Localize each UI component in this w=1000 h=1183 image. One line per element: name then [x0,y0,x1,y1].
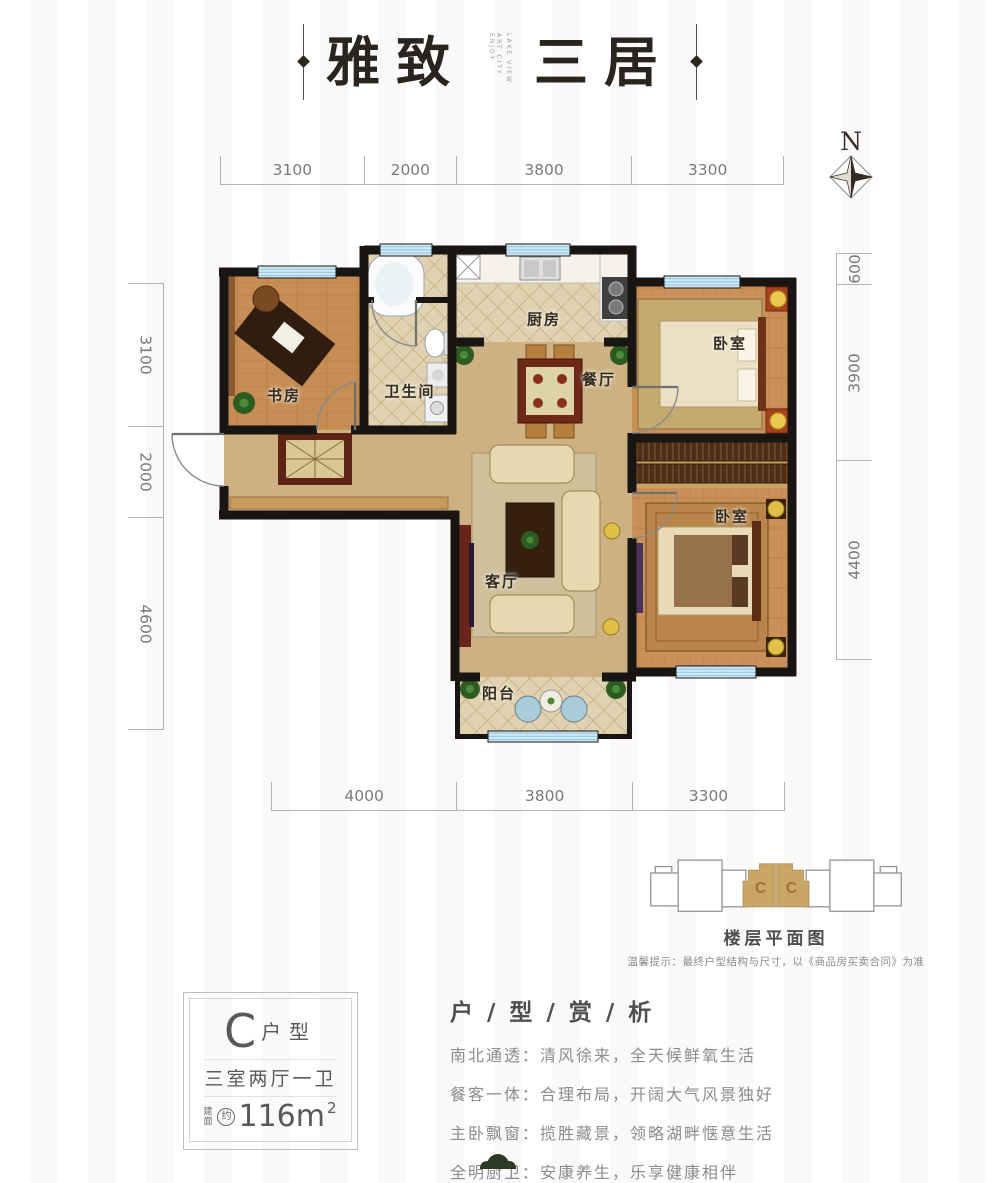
dim-top-1: 3100 [221,156,364,184]
floor-lamp [604,523,620,539]
title-ornament-left [303,24,304,100]
area-prefix: 建面 [203,1107,214,1128]
dim-bracket-top: 3100 2000 3800 3300 [220,156,784,185]
pillow [738,369,756,401]
compass: N [822,129,880,200]
pillow [738,329,756,361]
analysis-item: 主卧飘窗：揽胜藏景，领略湖畔惬意生活 [450,1120,890,1144]
window [258,266,336,278]
title-subtext-line1: ART CITY ENJOY [488,33,502,91]
lamp [770,413,786,429]
study-chair [253,286,279,312]
compass-north-label: N [822,129,880,154]
shoe-cabinet [230,497,448,509]
dim-bracket-bottom: 4000 3800 3300 [271,782,785,811]
window [676,666,756,678]
window [488,731,598,742]
dim-top-2: 2000 [364,156,456,184]
toilet [425,329,445,357]
floor-plan [152,243,834,743]
floorplate-caption: 楼层平面图 [648,924,904,949]
title-main-left: 雅致 [326,35,466,89]
sofa [562,491,600,591]
unit-c-label: C [755,880,766,897]
area-approx-icon: 约 [217,1108,235,1126]
unit-type-letter: C [224,1008,256,1054]
lamp [768,639,784,655]
headboard [758,317,766,411]
balcony-chair [515,696,541,722]
title-main-right: 三居 [534,35,674,89]
floorplan-flyer-page: { "title": { "main_left": "雅致", "main_ri… [0,0,1000,1169]
dim-bottom-2: 3800 [456,782,632,810]
sofa [490,445,574,483]
wardrobe [636,464,788,483]
area-superscript: 2 [327,1099,337,1117]
unit-layout: 三室两厅一卫 [204,1064,336,1091]
bedroom-south-furniture [635,499,786,657]
unit-c-label: C [786,880,797,897]
dim-right-2: 3900 [837,284,872,460]
sofa [490,595,574,633]
window [380,244,432,256]
tree-icon [477,1151,519,1169]
lamp [770,291,786,307]
floorplate-note: 温馨提示：最终户型结构与尺寸，以《商品房买卖合同》为准 [628,954,925,969]
dim-bottom-3: 3300 [632,782,784,810]
diamond-icon [690,55,703,68]
analysis-item: 南北通透：清风徐来，全天候鲜氧生活 [450,1042,890,1066]
living-furniture [458,445,620,647]
headboard [752,521,761,621]
analysis-title: 户 / 型 / 赏 / 析 [450,993,890,1027]
divider [204,1096,336,1097]
unit-area: 建面 约 116m 2 [203,1102,337,1132]
dim-bracket-right: 600 3900 4400 [836,253,872,660]
analysis-item: 餐客一体：合理布局，开阔大气风景独好 [450,1081,890,1105]
dim-right-1: 600 [837,254,872,284]
unit-info-card: C 户型 三室两厅一卫 建面 约 116m 2 [183,992,358,1150]
blanket [674,535,732,607]
page-title: 雅致 ART CITY ENJOY LAKE VIEW 三居 [0,20,1000,104]
building-outline: C C [648,848,904,918]
lamp [768,501,784,517]
diamond-icon [297,55,310,68]
dim-right-3: 4400 [837,460,872,659]
compass-star-icon [828,154,874,200]
window [664,276,740,288]
area-value: 116m [238,1102,324,1132]
window [506,244,570,256]
title-subtext: ART CITY ENJOY LAKE VIEW [488,33,512,91]
balcony-chair [561,696,587,722]
dim-bottom-1: 4000 [272,782,456,810]
dim-top-3: 3800 [456,156,631,184]
title-ornament-right [696,24,697,100]
floor-lamp [603,619,619,635]
wardrobe [636,442,788,461]
divider [204,1059,336,1060]
unit-type: C 户型 [224,1008,317,1054]
pillow [732,577,748,607]
pillow [732,535,748,565]
unit-type-suffix: 户型 [261,1016,317,1045]
dim-top-4: 3300 [631,156,783,184]
floorplate-diagram: C C 楼层平面图 温馨提示：最终户型结构与尺寸，以《商品房买卖合同》为准 [648,848,904,969]
title-subtext-line2: LAKE VIEW [505,33,512,91]
tv [469,543,474,627]
